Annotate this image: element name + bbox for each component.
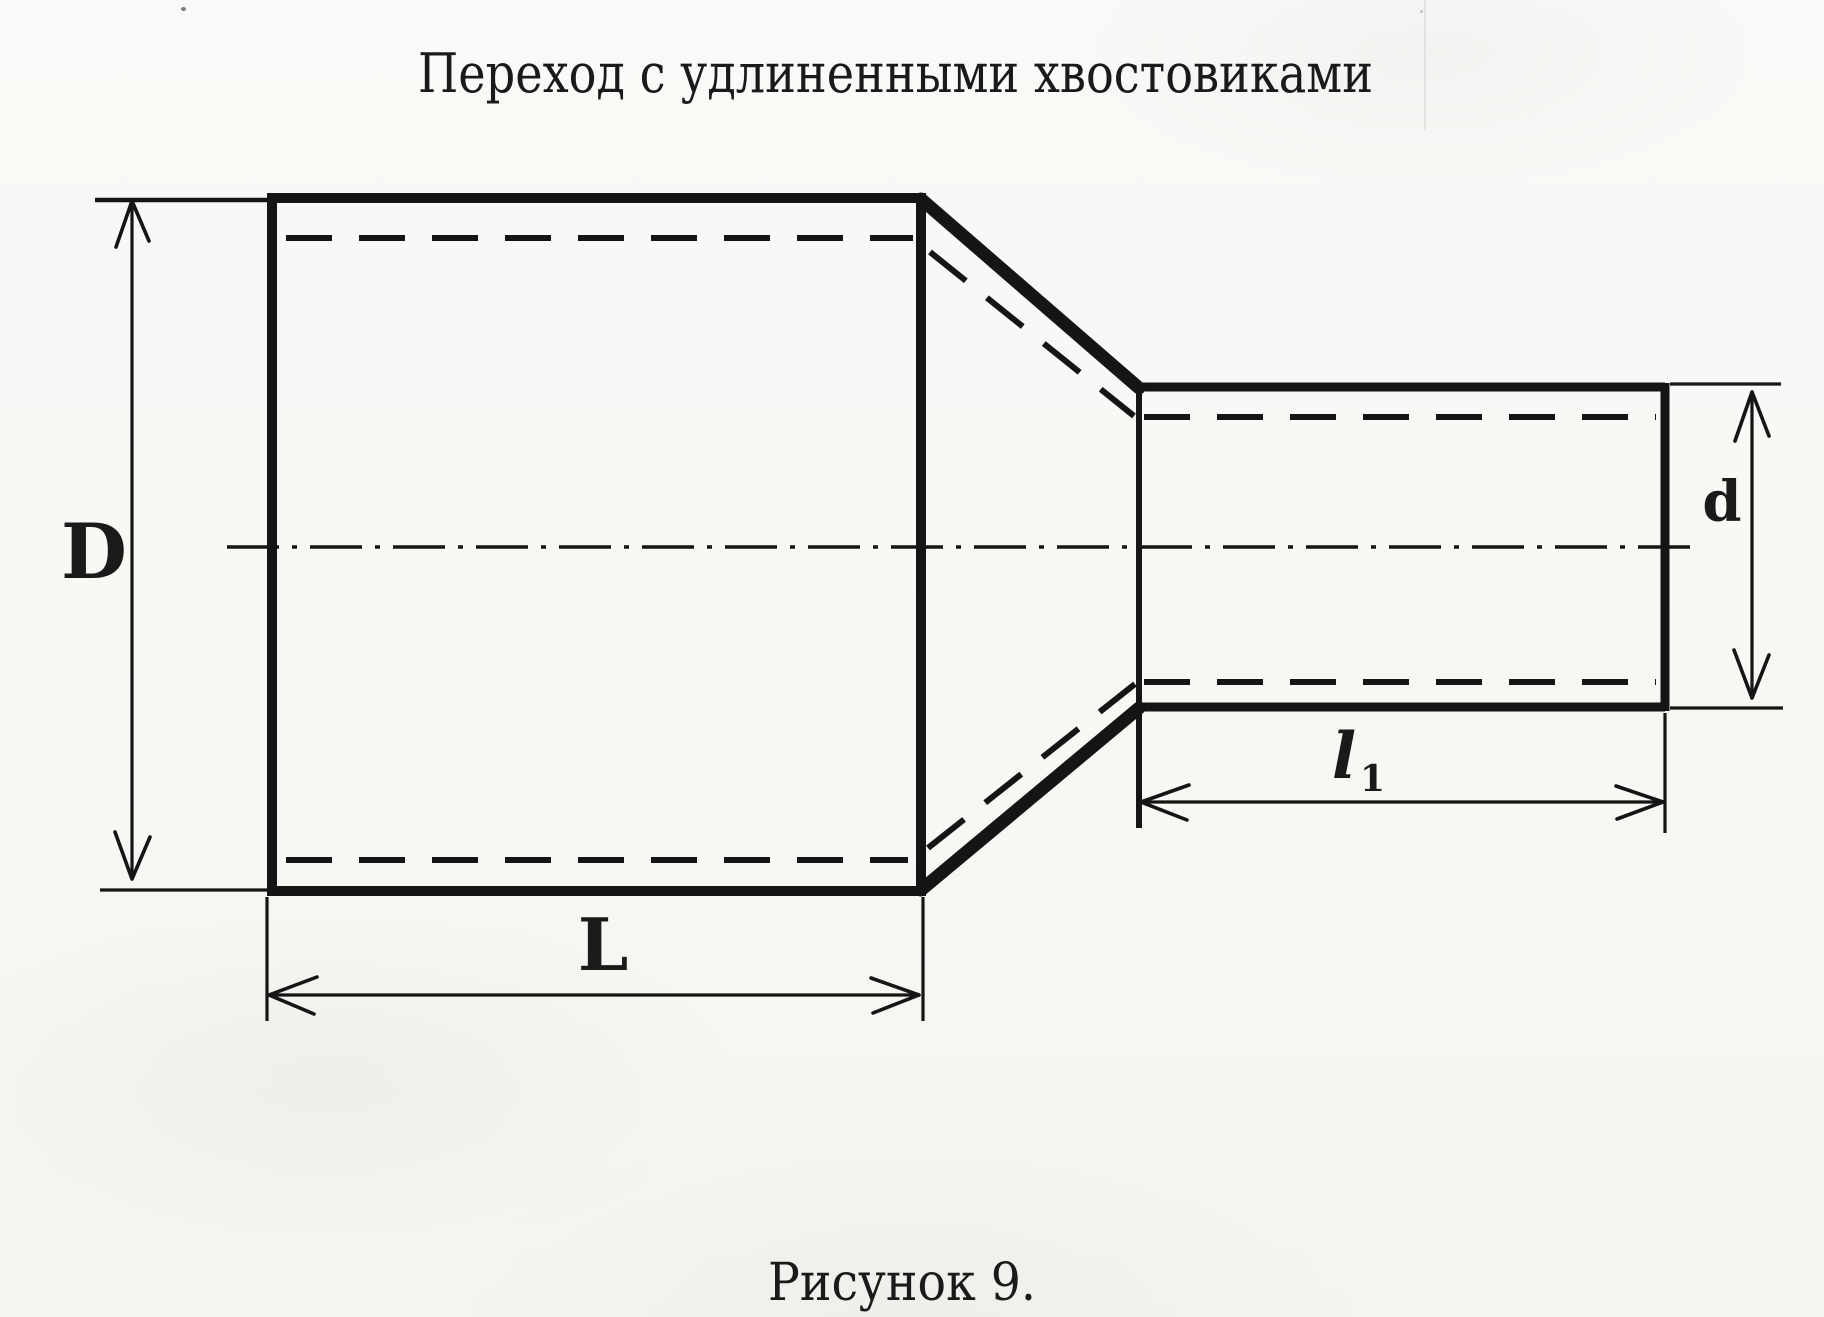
dimension-D: D [61,200,268,890]
label-L: L [578,902,629,987]
figure-caption: Рисунок 9. [768,1253,1036,1313]
dimension-L: L [267,897,923,1021]
label-D: D [61,507,127,596]
large-cylinder-outline [272,198,921,891]
cone-outline [921,199,1139,890]
drawing-title: Переход с удлиненными хвостовиками [418,42,1373,105]
figure-drawing: D d L [0,0,1824,1317]
scanned-drawing-page: D d L [0,0,1824,1317]
label-l1-subscript: 1 [1360,758,1385,800]
label-l1-base: l [1332,719,1356,794]
hidden-bore-lines [286,238,1656,860]
label-d: d [1702,469,1741,535]
dimension-l1: l 1 [1141,713,1665,833]
